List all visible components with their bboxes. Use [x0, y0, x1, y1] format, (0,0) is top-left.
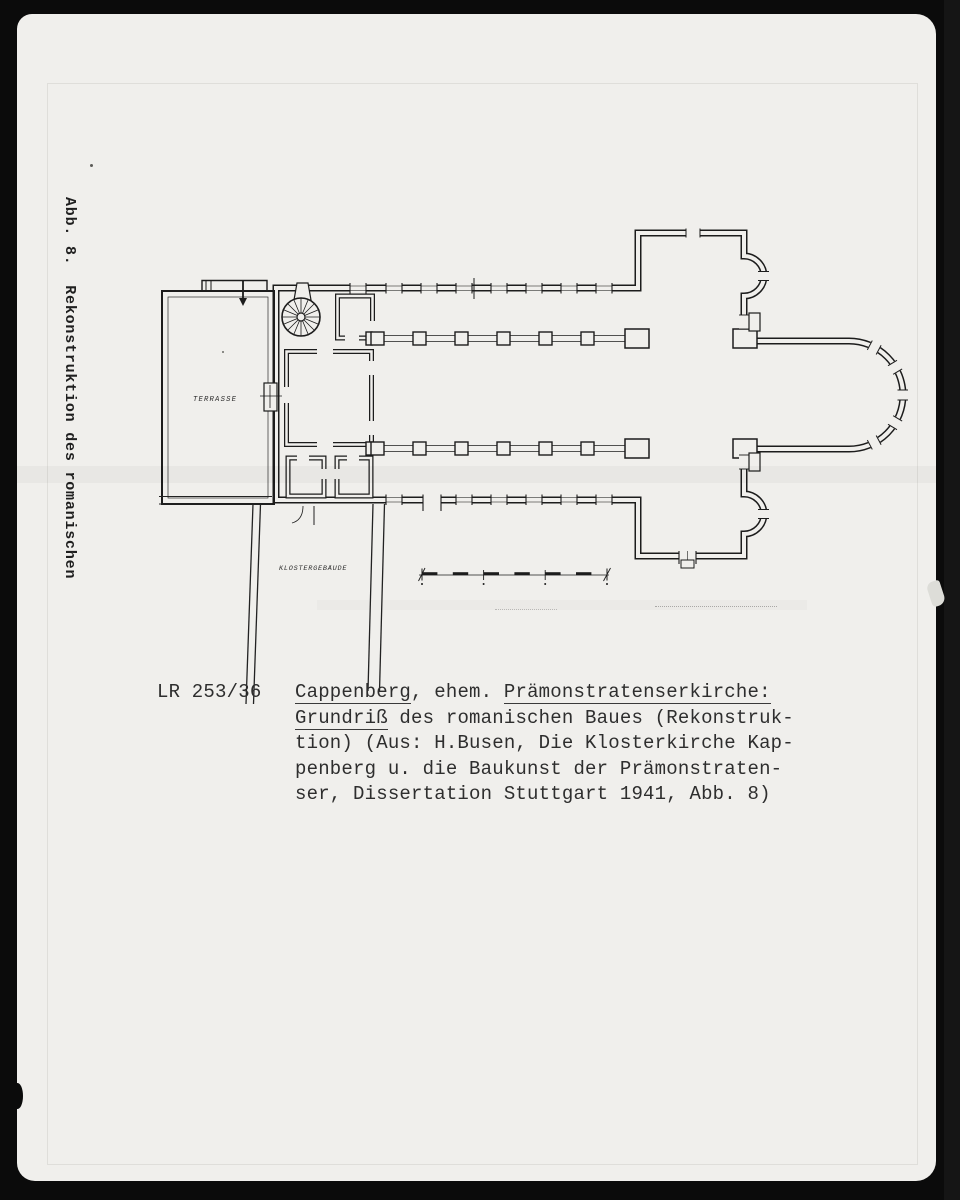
terrasse-label: TERRASSE	[193, 396, 237, 404]
crossing-piers	[625, 329, 757, 458]
north-apse-window	[758, 271, 769, 281]
film-edge-notch	[17, 1083, 23, 1109]
caption: LR 253/36 Cappenberg, ehem. Prämonstrate…	[157, 680, 857, 808]
caption-line-2: Grundriß des romanischen Baues (Rekonstr…	[295, 706, 794, 732]
caption-line-1: Cappenberg, ehem. Prämonstratenserkirche…	[295, 680, 794, 706]
film-edge-strip	[944, 0, 960, 1200]
dust-speck	[222, 351, 224, 353]
caption-line-3: tion) (Aus: H.Busen, Die Klosterkirche K…	[295, 731, 794, 757]
south-apse-window	[758, 509, 769, 519]
scan-streak-2	[317, 600, 807, 610]
chancel-north-door	[739, 313, 760, 331]
floor-plan: TERRASSE	[157, 199, 936, 719]
klostergebaeude-label: KLOSTERGEBÄUDE	[279, 564, 347, 573]
caption-line-5: ser, Dissertation Stuttgart 1941, Abb. 8…	[295, 782, 794, 808]
scale-bar	[419, 568, 611, 585]
side-label-line1: Abb. 8. Rekonstruktion des romanischen	[58, 197, 81, 617]
photo-paper: Abb. 8. Rekonstruktion des romanischen G…	[17, 14, 936, 1181]
dust-speck	[90, 164, 93, 167]
faint-dotted-line-2	[495, 609, 557, 610]
side-label: Abb. 8. Rekonstruktion des romanischen G…	[17, 197, 127, 617]
catalog-number: LR 253/36	[157, 680, 295, 808]
faint-dotted-line	[655, 606, 777, 607]
north-transept	[686, 229, 769, 332]
caption-line-4: penberg u. die Baukunst der Prämonstrate…	[295, 757, 794, 783]
entrance-arrow	[239, 281, 247, 306]
nave-arcades	[366, 332, 627, 455]
caption-text: Cappenberg, ehem. Prämonstratenserkirche…	[295, 680, 794, 808]
scan-streak	[17, 466, 936, 483]
south-transept-door	[679, 551, 696, 568]
film-border: Abb. 8. Rekonstruktion des romanischen G…	[0, 0, 960, 1200]
south-portal	[423, 495, 441, 512]
